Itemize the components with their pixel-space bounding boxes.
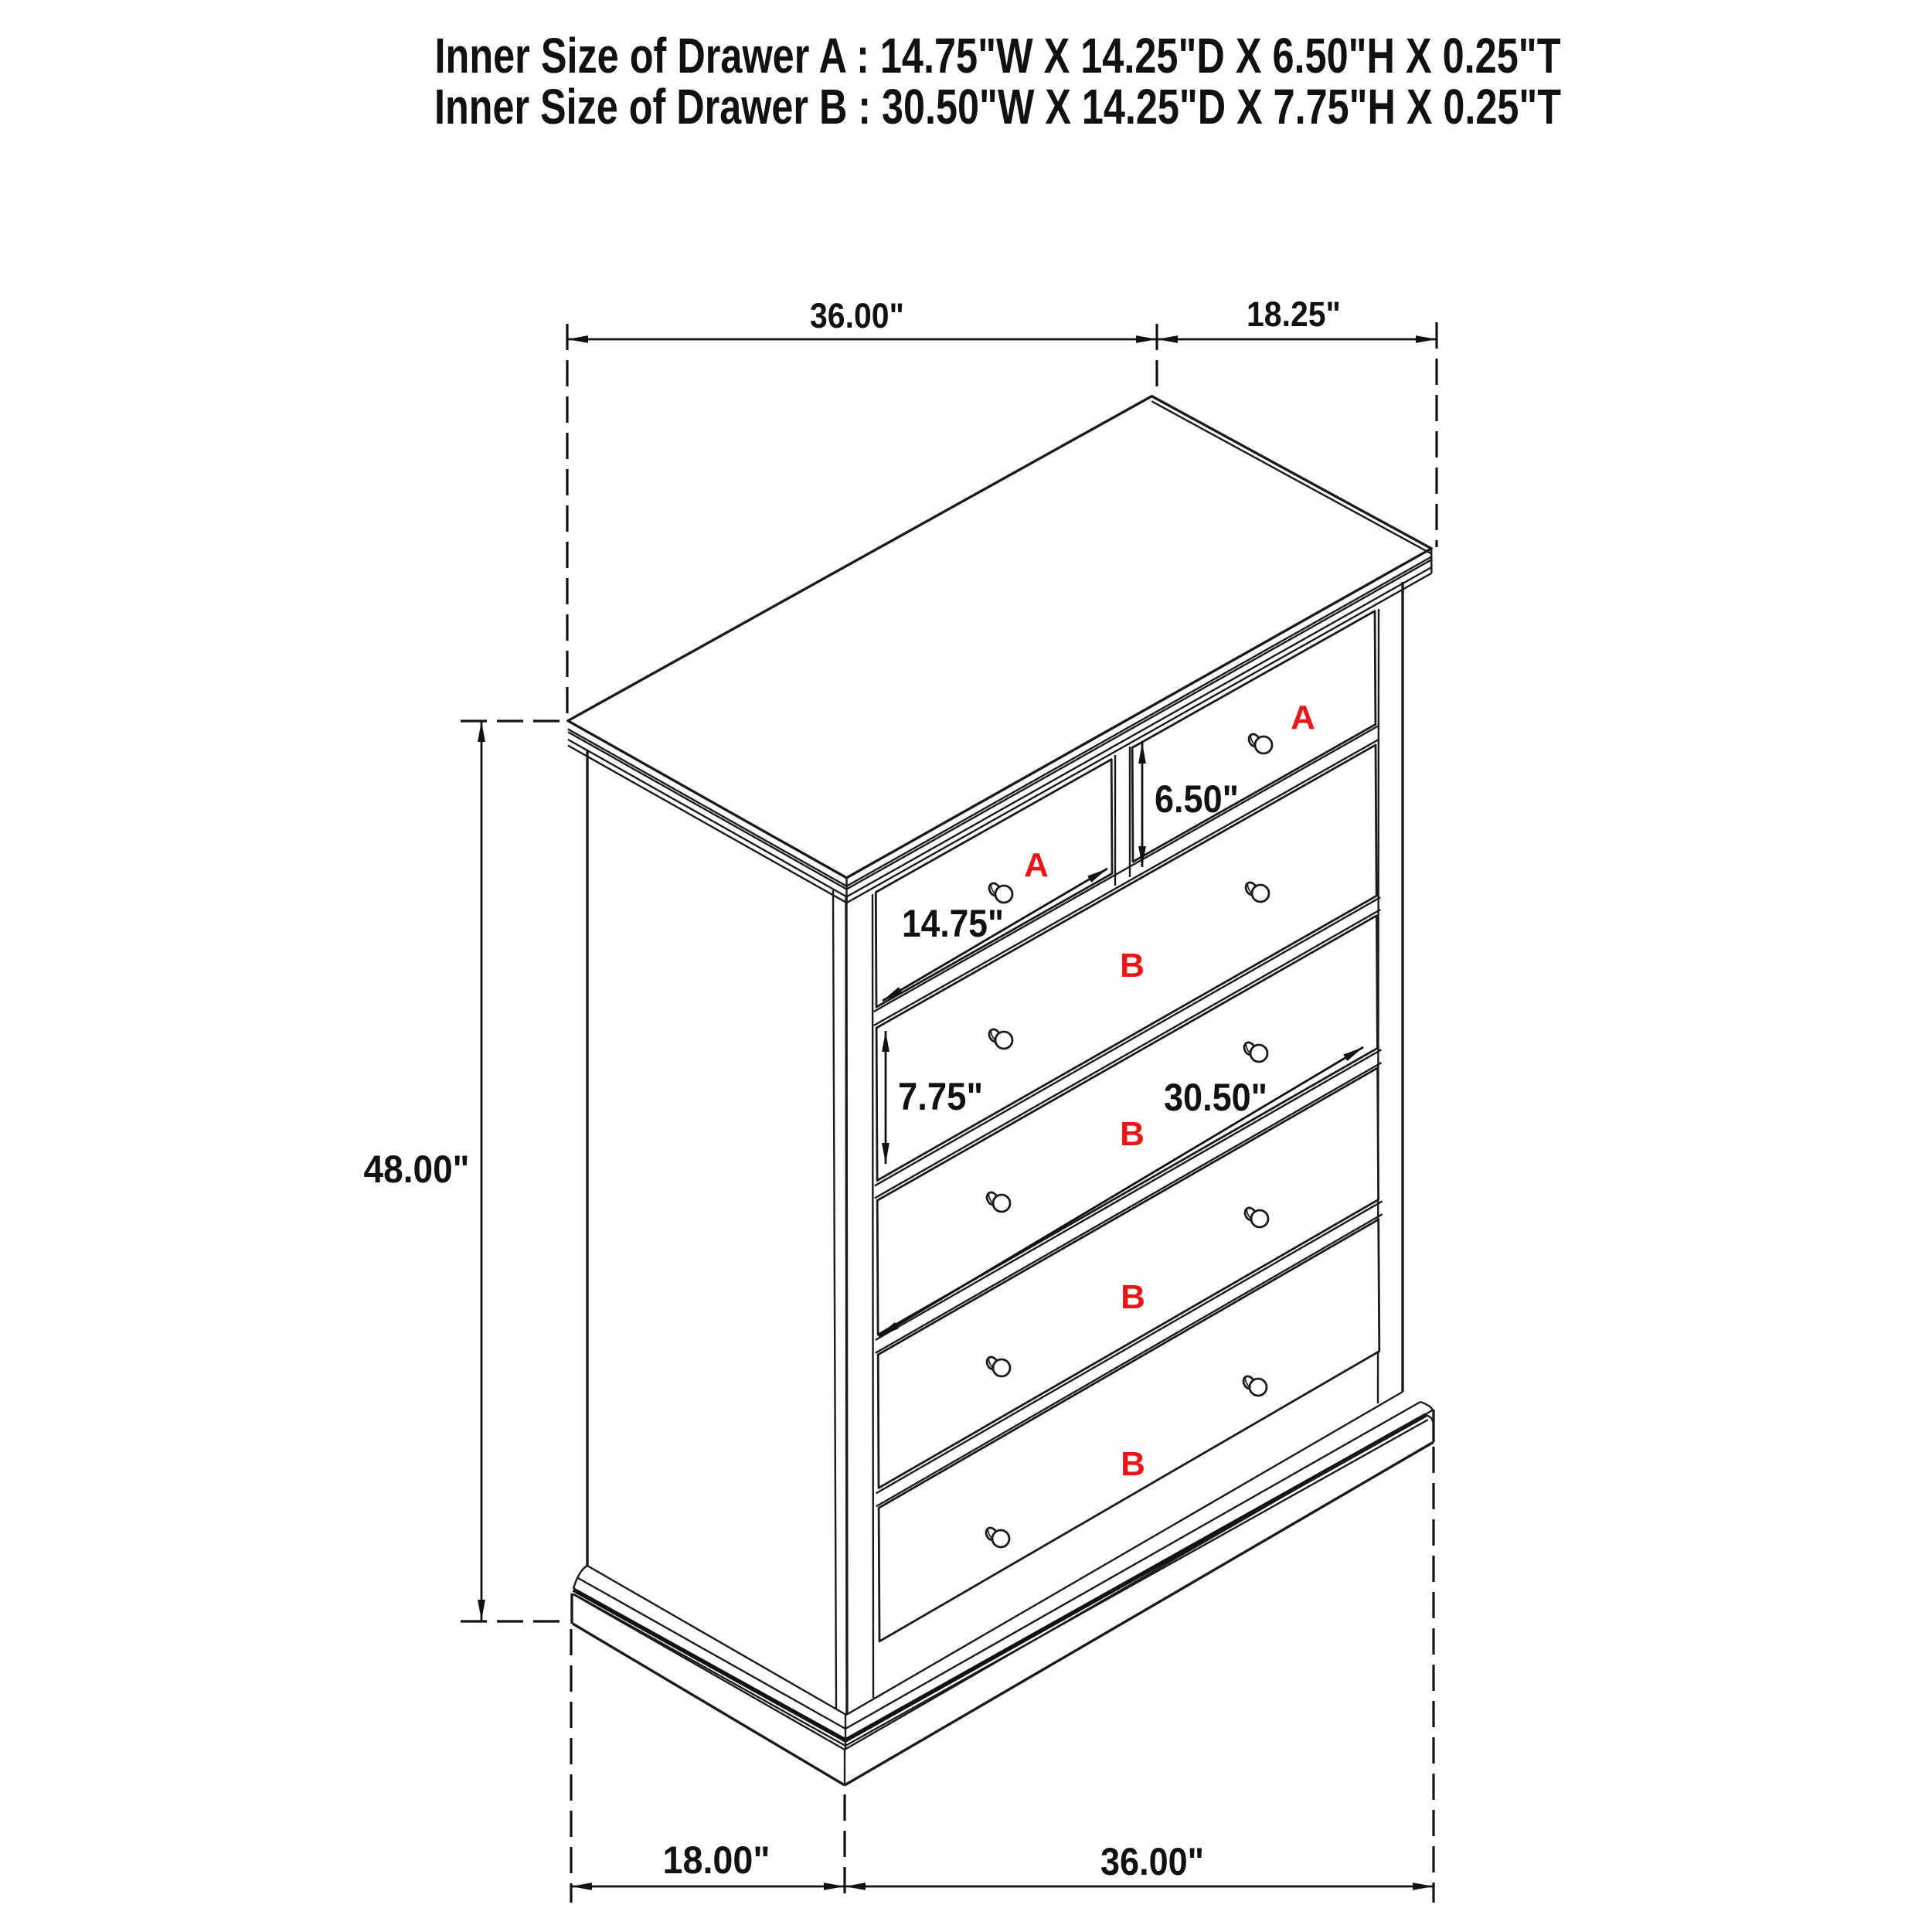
svg-text:A: A [1291, 699, 1315, 736]
svg-text:B: B [1121, 1445, 1145, 1483]
svg-text:18.00": 18.00" [663, 1838, 770, 1882]
svg-text:B: B [1120, 947, 1145, 985]
svg-text:36.00": 36.00" [810, 296, 904, 335]
svg-text:Inner Size of Drawer A : 14.75: Inner Size of Drawer A : 14.75"W X 14.25… [435, 28, 1561, 83]
svg-text:36.00": 36.00" [1100, 1840, 1204, 1883]
svg-text:B: B [1121, 1278, 1145, 1316]
svg-text:7.75": 7.75" [898, 1075, 983, 1118]
svg-text:A: A [1024, 846, 1049, 884]
svg-text:6.50": 6.50" [1155, 777, 1239, 821]
svg-text:Inner Size of Drawer B : 30.50: Inner Size of Drawer B : 30.50"W X 14.25… [434, 79, 1561, 134]
svg-text:14.75": 14.75" [902, 902, 1004, 945]
svg-text:18.25": 18.25" [1247, 294, 1341, 334]
svg-text:B: B [1120, 1115, 1145, 1153]
svg-text:30.50": 30.50" [1164, 1076, 1267, 1119]
svg-text:48.00": 48.00" [364, 1148, 470, 1191]
